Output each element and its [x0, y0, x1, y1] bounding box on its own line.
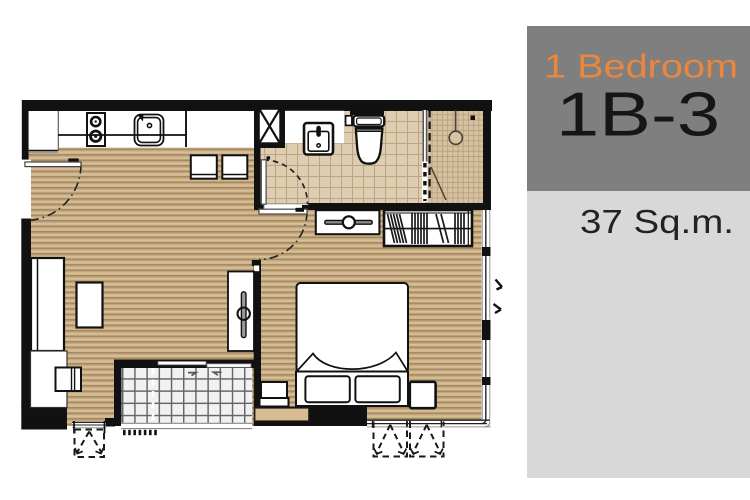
svg-text:1 Bedroom: 1 Bedroom	[544, 48, 738, 85]
svg-text:1B-3: 1B-3	[556, 81, 720, 150]
svg-text:37 Sq.m.: 37 Sq.m.	[580, 203, 734, 240]
